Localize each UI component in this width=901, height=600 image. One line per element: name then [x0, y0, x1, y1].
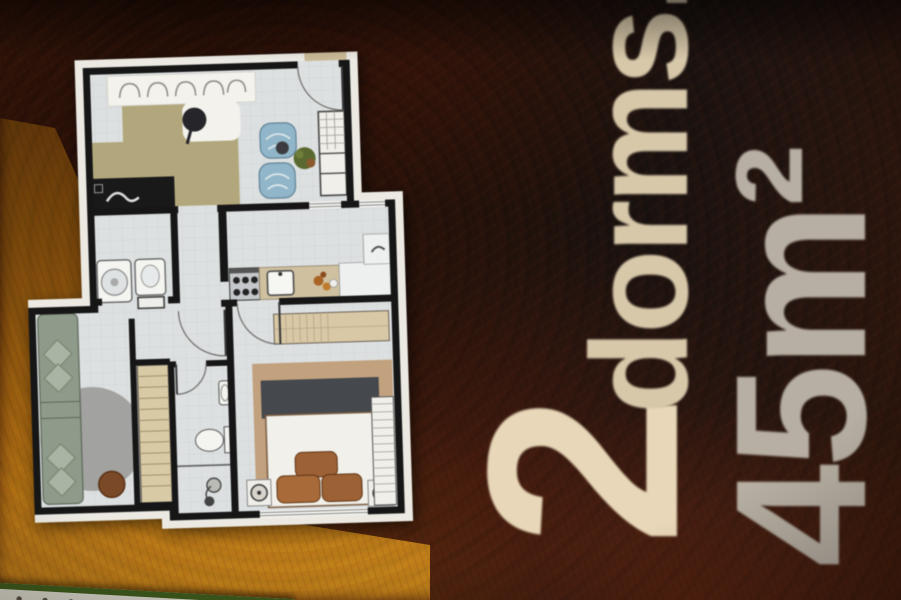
pouf [98, 471, 125, 498]
unit-type-label: dorms. [571, 0, 709, 414]
sofa [37, 313, 83, 504]
shelf-unit [318, 111, 347, 196]
floor-plan [20, 50, 413, 546]
hall-cabinet [137, 365, 172, 504]
unit-number-label: 2 [447, 394, 719, 545]
armchair-1 [260, 122, 297, 158]
counter-side [363, 234, 390, 265]
armchair-2 [259, 162, 296, 198]
tank-base [138, 297, 164, 309]
window-kitchen-top [309, 201, 341, 209]
counter-white [339, 262, 391, 298]
unit-area-label: 45m² [709, 149, 895, 567]
tank-basin [141, 265, 160, 288]
wardrobe [371, 397, 396, 506]
brochure-photo: 2 dorms. 45m² [0, 0, 901, 600]
window-kitchen-step [359, 200, 385, 208]
planter [304, 52, 346, 61]
stove-panel [229, 268, 259, 274]
